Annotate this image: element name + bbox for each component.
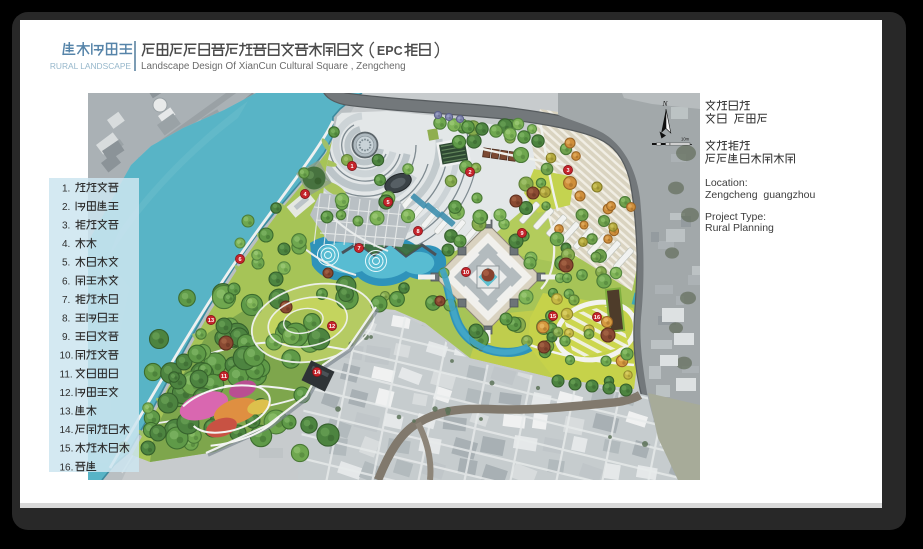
svg-text:2.: 2.	[62, 202, 70, 213]
svg-text:11.: 11.	[60, 369, 73, 380]
svg-text:7: 7	[357, 246, 360, 252]
svg-text:10m: 10m	[681, 137, 690, 142]
svg-text:14: 14	[314, 370, 321, 376]
svg-text:15: 15	[550, 314, 556, 320]
svg-text:2: 2	[468, 170, 471, 176]
svg-text:11: 11	[221, 374, 227, 380]
svg-text:6.: 6.	[62, 276, 70, 287]
svg-text:9.: 9.	[62, 332, 70, 343]
svg-text:7.: 7.	[62, 295, 70, 306]
svg-text:3: 3	[566, 168, 569, 174]
svg-text:16: 16	[594, 315, 600, 321]
svg-text:12: 12	[329, 324, 335, 330]
svg-text:6: 6	[238, 257, 241, 263]
svg-text:15.: 15.	[60, 444, 74, 455]
svg-text:4.: 4.	[62, 239, 70, 250]
svg-text:16.: 16.	[60, 462, 74, 472]
svg-text:9: 9	[520, 231, 523, 237]
svg-text:N: N	[662, 99, 669, 108]
svg-text:8: 8	[416, 229, 419, 235]
svg-text:3.: 3.	[62, 221, 70, 232]
svg-text:10.: 10.	[60, 351, 74, 362]
svg-text:5.: 5.	[62, 258, 70, 269]
svg-text:12.: 12.	[60, 388, 74, 399]
svg-text:14.: 14.	[60, 425, 74, 436]
svg-text:13: 13	[208, 318, 214, 324]
svg-text:1.: 1.	[62, 183, 70, 194]
svg-text:1: 1	[350, 164, 353, 170]
svg-text:13.: 13.	[60, 407, 74, 418]
svg-text:8.: 8.	[62, 314, 70, 325]
svg-text:EPC: EPC	[377, 44, 403, 58]
svg-text:10: 10	[463, 270, 469, 276]
svg-text:5: 5	[386, 200, 389, 206]
